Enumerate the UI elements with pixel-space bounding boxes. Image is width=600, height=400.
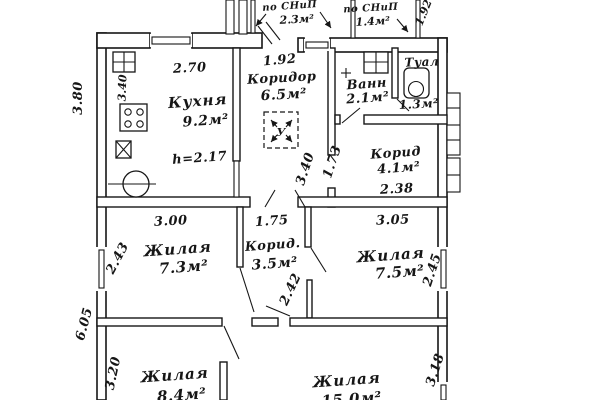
chimney-stack-left [226, 0, 234, 34]
dim-corridor-width: 1.92 [262, 52, 297, 70]
wall-top-right-b [330, 38, 447, 52]
room-kitchen-area: 9.2м² [182, 111, 229, 130]
right-wall-chimney-block [447, 93, 460, 192]
wall-lower-c [290, 318, 447, 326]
wall-lower-a [97, 318, 222, 326]
wall-corridor-bath [328, 48, 335, 155]
door-living1-leaf [240, 268, 254, 312]
room-toilet-name: Туал [404, 54, 439, 69]
floor-plan-page: 3.80 6.05 по СНиП 2.3м² по СНиП 1.4м² 1.… [0, 0, 600, 400]
porch2-area: 1.4м² [355, 14, 390, 29]
door-bath-leaf [342, 108, 360, 123]
room-bath-area: 2.1м² [345, 90, 390, 108]
kitchen-fixtures [108, 52, 156, 197]
dim-corridor-right-diag: 1.73 [320, 144, 345, 181]
room-living3-name: Жилая [139, 364, 209, 387]
floor-plan-canvas: 3.80 6.05 по СНиП 2.3м² по СНиП 1.4м² 1.… [0, 0, 600, 400]
porch1-area: 2.3м² [278, 12, 314, 27]
dim-kitchen-width: 2.70 [172, 60, 207, 77]
entry-step-line-b [266, 22, 280, 40]
dim-corridor-small-depth: 2.42 [276, 271, 304, 309]
room-corridor-small-name: Корид. [243, 236, 301, 255]
door-corridor-jamb-left [265, 190, 275, 207]
door-living2-leaf [311, 248, 326, 272]
room-living2-area: 7.5м² [374, 261, 425, 282]
room-corridor-right-area: 4.1м² [377, 160, 421, 178]
dim-living1-width: 3.00 [154, 213, 188, 230]
wall-bath-bottom-b [364, 115, 447, 124]
wall-corr3-left [237, 207, 243, 267]
bath-sink-symbol [364, 52, 388, 73]
wall-corr3-right [305, 207, 311, 247]
toilet-symbol [404, 68, 429, 98]
door-kitchen-leaf [234, 161, 239, 197]
tap-symbol [341, 68, 351, 78]
wall-top-right-a [298, 38, 304, 52]
wall-left [97, 33, 106, 400]
window-top-right [304, 39, 330, 51]
dim-left-upper: 3.80 [71, 81, 86, 115]
door-living3-leaf [224, 326, 239, 359]
kitchen-sink-symbol [113, 52, 135, 72]
wall-bath-bottom-a [335, 115, 340, 124]
gas-meter-symbol [116, 141, 131, 158]
dim-corridor-depth-diag: 3.40 [293, 151, 318, 188]
chimney-stack-right [239, 0, 247, 34]
stove-symbol [120, 104, 147, 131]
wall-bottom-divider [220, 362, 227, 400]
dim-living2-width: 3.05 [376, 212, 410, 228]
window-top-left [150, 34, 192, 47]
dim-corridor-right-width: 2.38 [379, 181, 414, 198]
wall-top-left-a [97, 33, 150, 48]
room-corridor-area: 6.5м² [260, 86, 307, 104]
wall-right [438, 38, 447, 400]
wall-bath-toilet-divider [392, 48, 398, 98]
room-kitchen-name: Кухня [166, 90, 228, 112]
wall-corr3-right-stub [307, 280, 312, 318]
dim-living1-depth: 2.43 [103, 240, 133, 278]
dim-corridor-small-width: 1.75 [254, 213, 289, 230]
attic-hatch-label: У [277, 126, 287, 139]
porch2-name: по СНиП [343, 2, 399, 16]
wall-kitchen-right [233, 48, 240, 161]
room-toilet-area: 1.3м² [398, 96, 439, 112]
dim-kitchen-depth: 3.40 [116, 74, 130, 102]
kitchen-height-note: h=2.17 [172, 149, 228, 168]
wall-lower-b [252, 318, 278, 326]
room-corridor-small-area: 3.5м² [251, 254, 298, 273]
wall-mid-b [298, 197, 447, 207]
room-living1-area: 7.3м² [158, 256, 209, 277]
dim-left-lower: 6.05 [73, 306, 96, 342]
wall-mid-a [97, 197, 250, 207]
wall-top-left-b [192, 33, 262, 48]
door-living4-leaf [266, 306, 290, 316]
water-heater-symbol [108, 171, 156, 197]
room-living3-area: 8.4м² [156, 384, 207, 400]
porch-wall-left [251, 0, 255, 33]
